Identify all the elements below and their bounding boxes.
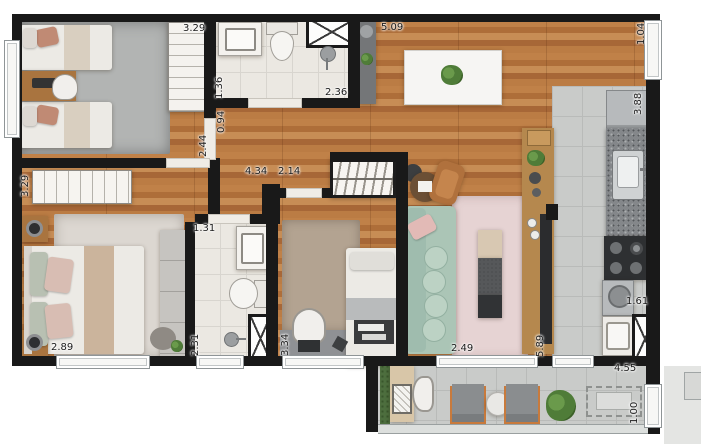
dimension-label-bath2-width: 1.31 <box>193 224 215 234</box>
dimension-labels-layer: 3.291.360.942.442.365.091.043.884.342.14… <box>0 0 701 444</box>
dimension-label-balcony-length: 4.55 <box>614 364 636 374</box>
dimension-label-bed2-width: 2.89 <box>51 343 73 353</box>
dimension-label-hall-length: 4.34 <box>245 167 267 177</box>
dimension-label-laundry-width: 1.61 <box>626 297 648 307</box>
dimension-label-bath1-width: 1.36 <box>215 77 225 99</box>
dimension-label-living-width: 2.49 <box>451 344 473 354</box>
dimension-label-room3-length: 3.34 <box>281 334 291 356</box>
dimension-label-balcony-width: 1.00 <box>630 402 640 424</box>
dimension-label-bath1-length: 2.36 <box>325 88 347 98</box>
dimension-label-hall-branch: 2.14 <box>278 167 300 177</box>
dimension-label-bed1-closet: 3.29 <box>183 24 205 34</box>
dimension-label-window-right: 1.04 <box>637 23 647 45</box>
floor-plan: 3.291.360.942.442.365.091.043.884.342.14… <box>0 0 701 444</box>
dimension-label-living-length: 5.89 <box>536 335 546 357</box>
dimension-label-bed2-side: 3.29 <box>21 175 31 197</box>
dimension-label-bath2-length: 2.31 <box>191 334 201 356</box>
dimension-label-bed1-door: 2.44 <box>199 135 209 157</box>
dimension-label-hall-width: 0.94 <box>217 111 227 133</box>
dimension-label-living-top: 5.09 <box>381 23 403 33</box>
dimension-label-kitchen-length: 3.88 <box>634 93 644 115</box>
